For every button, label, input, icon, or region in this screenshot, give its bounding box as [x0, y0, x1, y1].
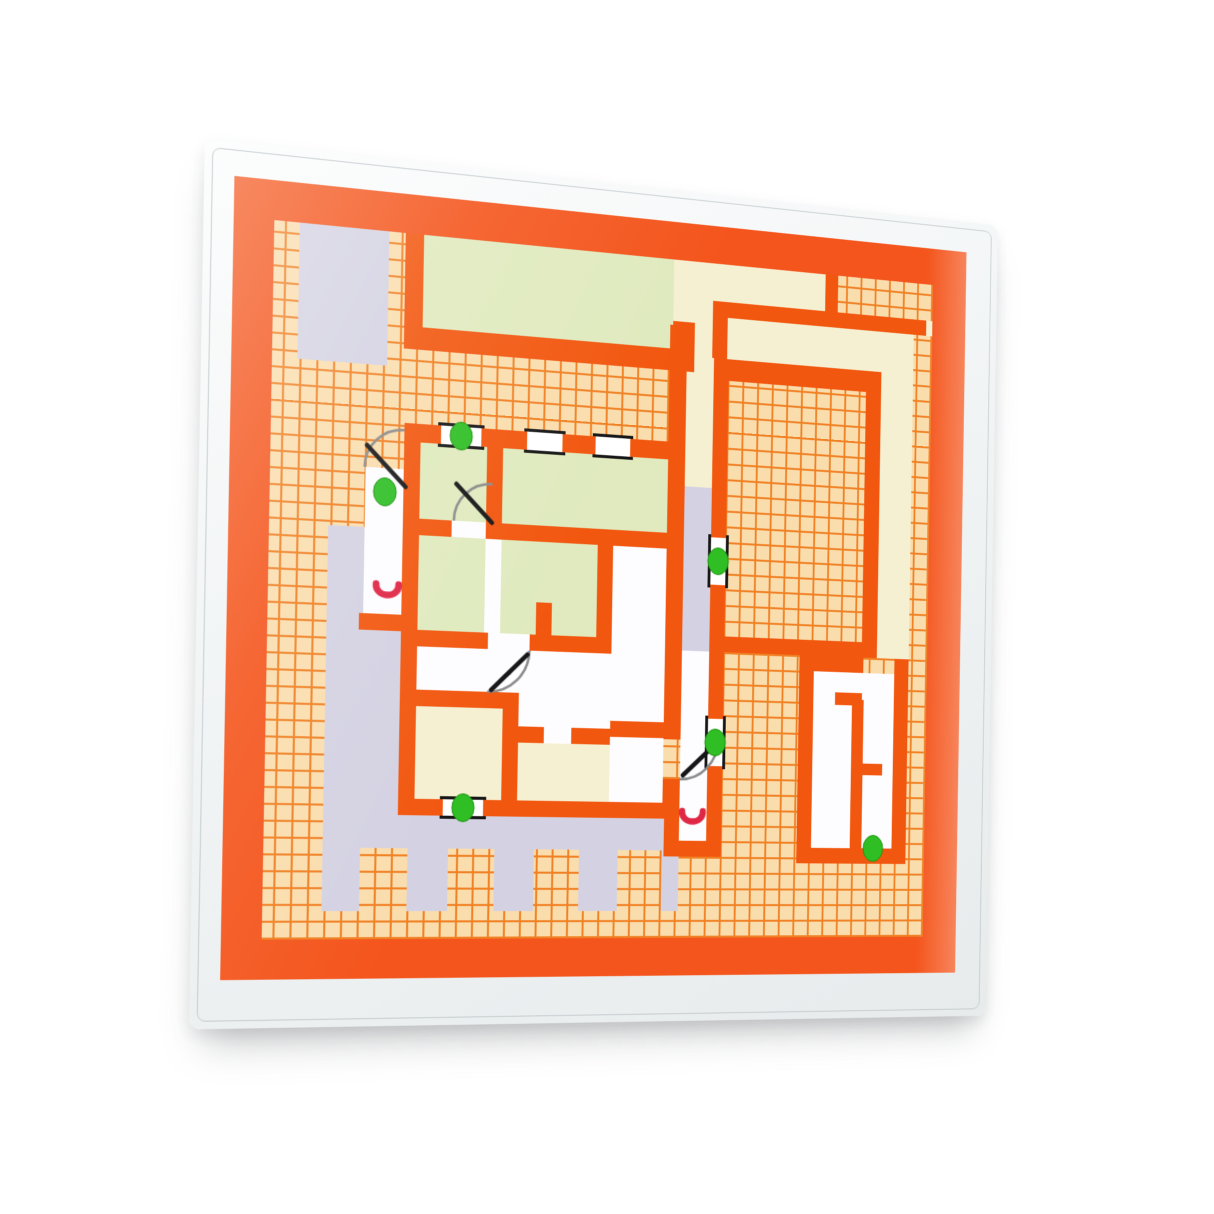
- floor-plan-card: [220, 176, 966, 980]
- green-dot-marker: [863, 835, 883, 861]
- wall-porch-bottom: [663, 841, 721, 857]
- courtyard-grid: [724, 381, 866, 642]
- wall-garage-inner-v: [850, 700, 864, 849]
- terrace-notch: [533, 849, 579, 911]
- terrace-west-band: [323, 525, 365, 815]
- wall-interior-h3b: [571, 728, 610, 745]
- green-dot-marker: [452, 794, 475, 822]
- wall-upper-vertical-connector: [712, 301, 728, 359]
- green-dot-marker: [705, 729, 726, 756]
- house-room-cream-left: [414, 706, 502, 800]
- terrace-notch: [359, 848, 407, 911]
- wall-interior-v3: [501, 692, 519, 800]
- house-room-cream-mid: [517, 743, 610, 802]
- house-room-green-left: [417, 535, 485, 632]
- wall-interior-h5: [610, 721, 664, 738]
- wall-patch-left: [825, 274, 838, 312]
- window-gap: [527, 432, 563, 453]
- lavender-block-topleft: [297, 223, 389, 366]
- product-photo-scene: [206, 184, 1030, 1022]
- terrace-notch: [447, 849, 494, 912]
- photo-background: [0, 0, 1214, 1214]
- wall-interior-h2b: [529, 634, 611, 653]
- green-dot-marker: [708, 547, 729, 575]
- cream-band-left-of-courtyard: [685, 356, 714, 488]
- wall-porch-left-stub: [664, 819, 679, 841]
- lavender-strip-right-of-house: [682, 486, 712, 651]
- green-dot-marker: [373, 477, 396, 506]
- wall-interior-h2a: [417, 630, 488, 649]
- wall-entry-strip-cap: [359, 613, 418, 632]
- window-gap: [595, 436, 630, 456]
- wall-garage-inner-tick: [862, 764, 882, 776]
- wall-interior-h3a: [518, 726, 544, 743]
- terrace-notch: [617, 850, 662, 911]
- plastic-sleeve: [189, 139, 998, 1030]
- wall-interior-stub: [536, 602, 552, 635]
- wall-garage-bottom: [796, 848, 905, 864]
- frame-bottom: [220, 937, 955, 981]
- terrace-west-wide: [360, 613, 402, 815]
- cream-band-right-of-courtyard: [877, 372, 913, 659]
- floor-plan-graphic: [220, 176, 966, 980]
- wall-interior-h1a: [419, 519, 452, 537]
